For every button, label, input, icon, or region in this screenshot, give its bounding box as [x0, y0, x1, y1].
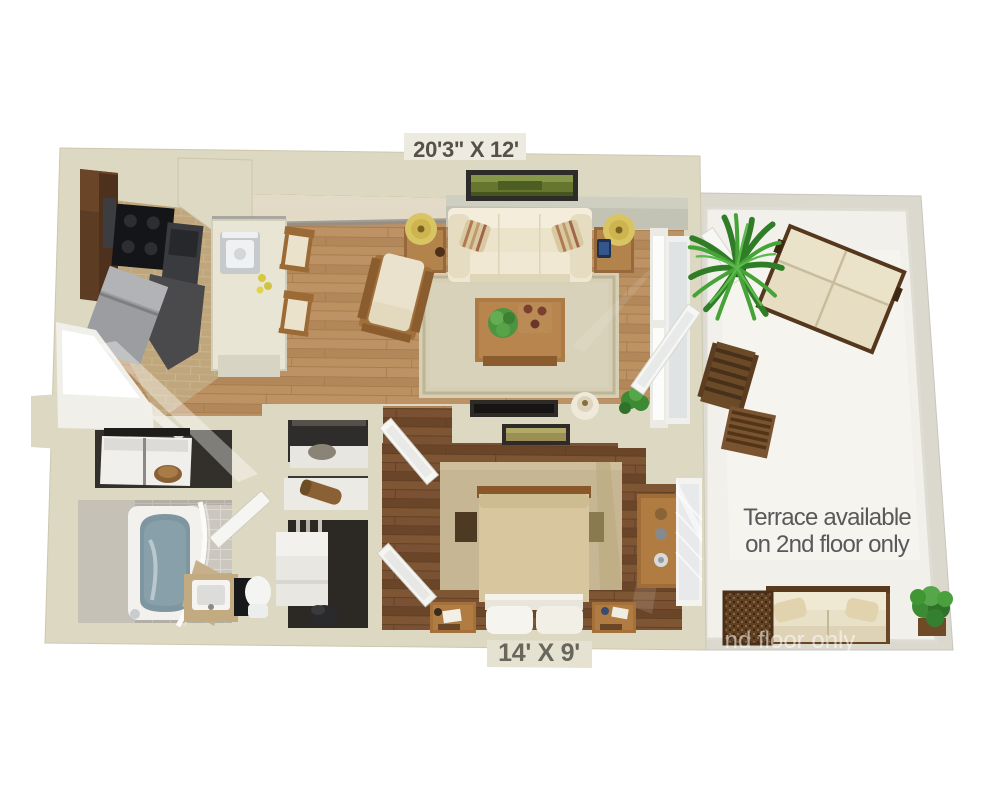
svg-text:20'3" X 12': 20'3" X 12' [413, 137, 519, 162]
svg-text:14' X 9': 14' X 9' [498, 639, 580, 667]
svg-text:Terrace available: Terrace available [743, 504, 911, 531]
svg-text:on 2nd floor only: on 2nd floor only [745, 531, 910, 558]
svg-text:nd floor only: nd floor only [725, 627, 856, 654]
